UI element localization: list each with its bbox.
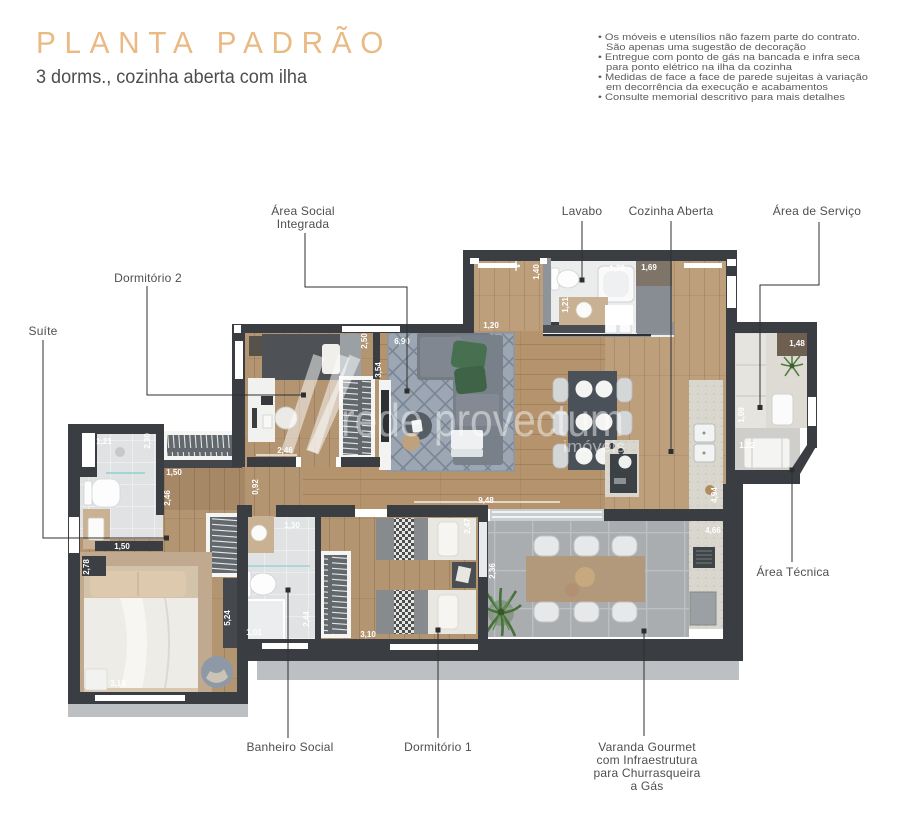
svg-text:0,92: 0,92 — [251, 479, 260, 495]
svg-text:1,30: 1,30 — [284, 521, 300, 530]
svg-text:3,19: 3,19 — [110, 679, 126, 688]
svg-text:imóveis: imóveis — [563, 437, 625, 456]
svg-text:2,36: 2,36 — [488, 563, 497, 579]
svg-text:1,40: 1,40 — [532, 264, 541, 280]
svg-text:3,10: 3,10 — [360, 630, 376, 639]
svg-text:1,20: 1,20 — [483, 321, 499, 330]
svg-text:Integrada: Integrada — [277, 217, 330, 231]
svg-text:1,09: 1,09 — [737, 407, 746, 423]
svg-text:Área Social: Área Social — [271, 203, 335, 218]
svg-text:para Churrasqueira: para Churrasqueira — [594, 766, 701, 780]
svg-text:Banheiro Social: Banheiro Social — [246, 740, 333, 754]
svg-text:Varanda Gourmet: Varanda Gourmet — [598, 740, 696, 754]
svg-text:9,48: 9,48 — [478, 496, 494, 505]
svg-text:1,78: 1,78 — [609, 264, 625, 273]
svg-text:4,94: 4,94 — [710, 487, 719, 503]
svg-text:1,21: 1,21 — [96, 437, 112, 446]
svg-text:Dormitório 2: Dormitório 2 — [114, 271, 182, 285]
svg-text:com Infraestrutura: com Infraestrutura — [597, 753, 698, 767]
svg-text:1,69: 1,69 — [641, 263, 657, 272]
svg-text:1,50: 1,50 — [114, 542, 130, 551]
svg-text:Área Técnica: Área Técnica — [757, 564, 830, 579]
svg-text:2,46: 2,46 — [277, 446, 293, 455]
svg-text:a Gás: a Gás — [630, 779, 663, 793]
svg-text:2,78: 2,78 — [82, 559, 91, 575]
svg-text:2,47: 2,47 — [463, 518, 472, 534]
svg-text:1,21: 1,21 — [561, 297, 570, 313]
svg-text:6,90: 6,90 — [394, 337, 410, 346]
svg-text:1,50: 1,50 — [166, 468, 182, 477]
svg-text:3,54: 3,54 — [374, 362, 383, 378]
svg-text:5,24: 5,24 — [223, 610, 232, 626]
svg-text:Lavabo: Lavabo — [562, 204, 603, 218]
svg-text:• Consulte memorial descritivo: • Consulte memorial descritivo para mais… — [598, 92, 845, 103]
svg-text:2,30: 2,30 — [143, 433, 152, 449]
svg-text:1,48: 1,48 — [789, 339, 805, 348]
svg-text:2,50: 2,50 — [360, 333, 369, 349]
svg-text:4,66: 4,66 — [705, 526, 721, 535]
svg-text:2,46: 2,46 — [163, 490, 172, 506]
svg-text:1,22: 1,22 — [739, 441, 755, 450]
svg-text:Área de Serviço: Área de Serviço — [773, 203, 862, 218]
svg-text:Suíte: Suíte — [28, 324, 57, 338]
svg-text:Dormitório 1: Dormitório 1 — [404, 740, 472, 754]
svg-text:Cozinha Aberta: Cozinha Aberta — [629, 204, 714, 218]
svg-text:PLANTA PADRÃO: PLANTA PADRÃO — [36, 25, 392, 60]
svg-text:2,44: 2,44 — [302, 611, 311, 627]
svg-text:3 dorms., cozinha aberta com i: 3 dorms., cozinha aberta com ilha — [36, 67, 307, 88]
svg-text:1,01: 1,01 — [246, 628, 262, 637]
